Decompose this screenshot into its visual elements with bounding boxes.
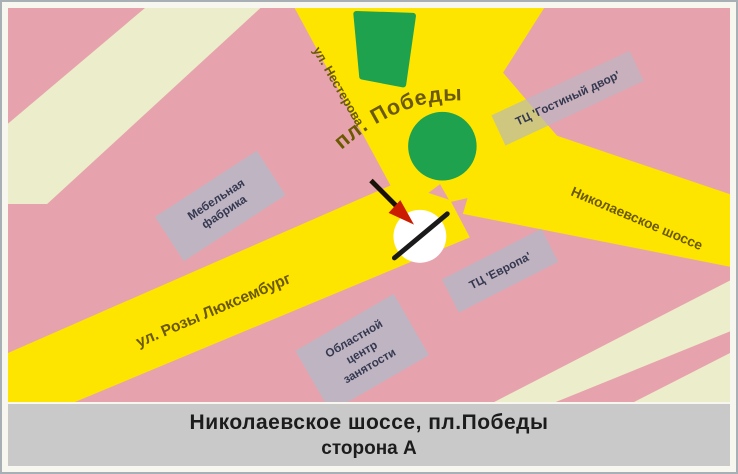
map-card: Мебельная фабрика ТЦ 'Гостиный двор' ТЦ … (0, 0, 738, 474)
park-circle (408, 112, 476, 181)
caption-side: сторона А (321, 438, 416, 460)
map-area: Мебельная фабрика ТЦ 'Гостиный двор' ТЦ … (8, 8, 730, 402)
park-strip (356, 14, 413, 85)
caption-address: Николаевское шоссе, пл.Победы (190, 411, 549, 435)
city-map: Мебельная фабрика ТЦ 'Гостиный двор' ТЦ … (8, 8, 730, 402)
caption-bar: Николаевское шоссе, пл.Победы сторона А (8, 404, 730, 466)
